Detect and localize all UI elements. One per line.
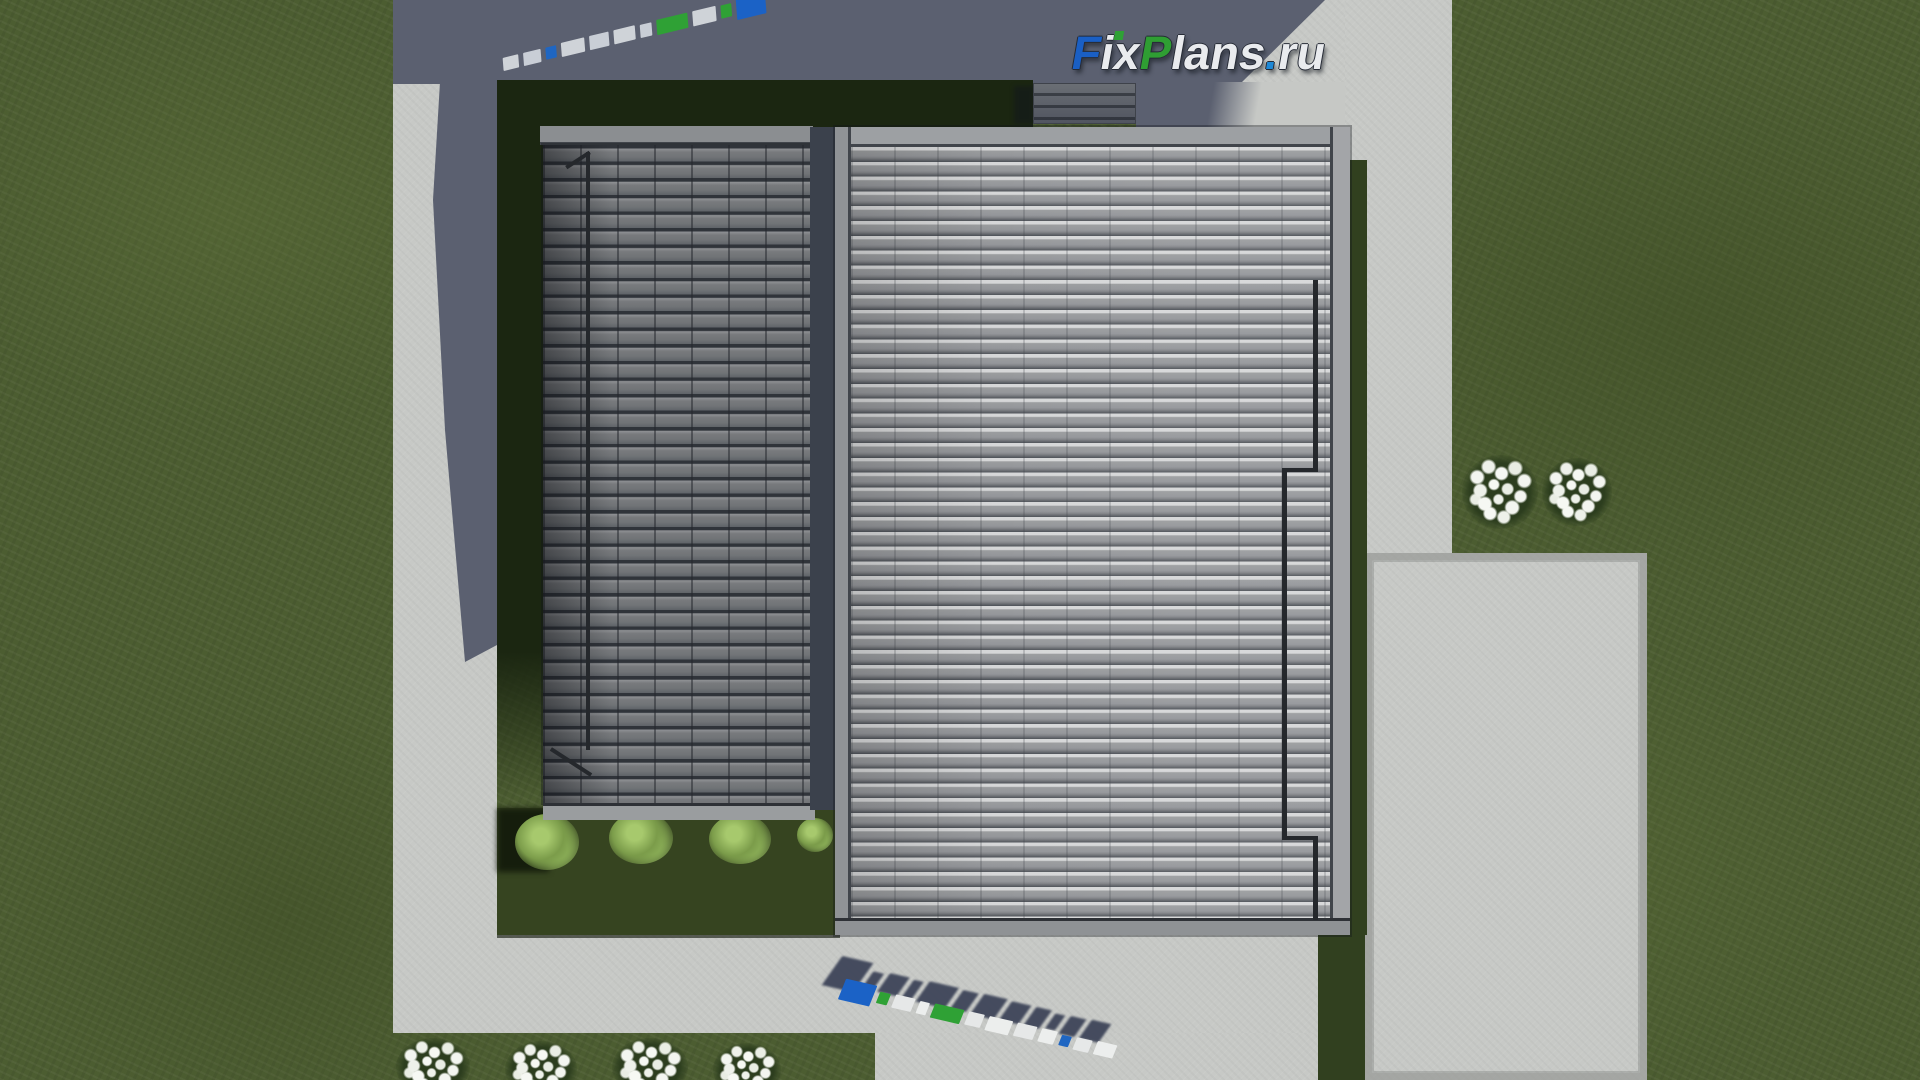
flower-bush	[612, 1038, 688, 1080]
watermark-block	[720, 3, 732, 19]
watermark-block	[545, 45, 557, 60]
right-roof-drainpipe-joint-upper	[1282, 468, 1318, 472]
courtyard-lawn	[497, 808, 839, 935]
courtyard-bush	[797, 818, 833, 852]
courtyard-bush	[709, 814, 771, 864]
driveway-pad	[1365, 553, 1647, 1080]
right-roof-drainpipe-upper	[1313, 280, 1318, 472]
flower-bush	[396, 1038, 470, 1080]
watermark-block	[1093, 1041, 1118, 1059]
fixplans-logo: FixPlans.ru	[1068, 30, 1377, 80]
watermark-block	[561, 37, 585, 57]
watermark-block	[589, 31, 610, 50]
watermark-block	[502, 54, 519, 71]
logo-letter-segment: lans	[1168, 30, 1270, 76]
watermark-block	[1072, 1037, 1093, 1053]
watermark-block	[964, 1011, 985, 1028]
bottom-walkway-edge-seam	[497, 935, 840, 938]
left-roof-eave-cap	[543, 803, 815, 820]
chimney-cast-shadow	[1014, 86, 1034, 124]
right-roof-parapet-top	[835, 127, 1350, 147]
flower-bush	[505, 1041, 577, 1080]
left-walkway	[393, 0, 497, 1033]
southeast-grass-strip	[1318, 935, 1365, 1080]
right-roof-parapet-right	[1330, 127, 1350, 935]
east-grass-strip	[1350, 160, 1367, 935]
logo-i-dot	[1114, 31, 1125, 40]
right-roof-tile-field	[851, 147, 1330, 920]
watermark-block	[930, 1003, 965, 1024]
watermark-block	[656, 12, 688, 35]
watermark-block	[613, 25, 636, 44]
chimney	[1033, 83, 1136, 124]
courtyard-bush	[515, 814, 579, 870]
watermark-block	[916, 1000, 931, 1014]
watermark-block	[876, 992, 891, 1006]
right-roof-drainpipe-middle	[1282, 472, 1287, 840]
right-roof-eave-cap	[835, 918, 1350, 935]
logo-letter-segment: ru	[1275, 30, 1330, 76]
watermark-block	[692, 5, 717, 26]
flower-bush	[1542, 458, 1612, 526]
flower-bush	[1462, 455, 1538, 529]
right-roof-parapet-left	[835, 127, 851, 935]
watermark-block	[1037, 1028, 1058, 1045]
right-roof-drainpipe-lower	[1313, 840, 1318, 920]
watermark-block	[1058, 1034, 1072, 1047]
right-roof-section	[835, 127, 1350, 935]
watermark-block	[891, 994, 916, 1012]
watermark-block	[1013, 1022, 1038, 1040]
northeast-walkway-corner	[1136, 82, 1345, 130]
left-roof-drainpipe	[586, 152, 590, 750]
left-roof-section	[543, 145, 810, 803]
watermark-block	[523, 48, 542, 65]
left-roof-ridge-cap	[540, 126, 813, 145]
west-grass-strip-shadowed	[497, 135, 548, 815]
aerial-roof-plan-render: FixPlans.ru	[0, 0, 1920, 1080]
house-shadow-on-left-walkway	[393, 0, 497, 1033]
flower-bush	[713, 1043, 781, 1080]
watermark-block	[984, 1015, 1013, 1034]
watermark-block	[640, 22, 653, 38]
roof-valley-gap	[810, 127, 835, 810]
